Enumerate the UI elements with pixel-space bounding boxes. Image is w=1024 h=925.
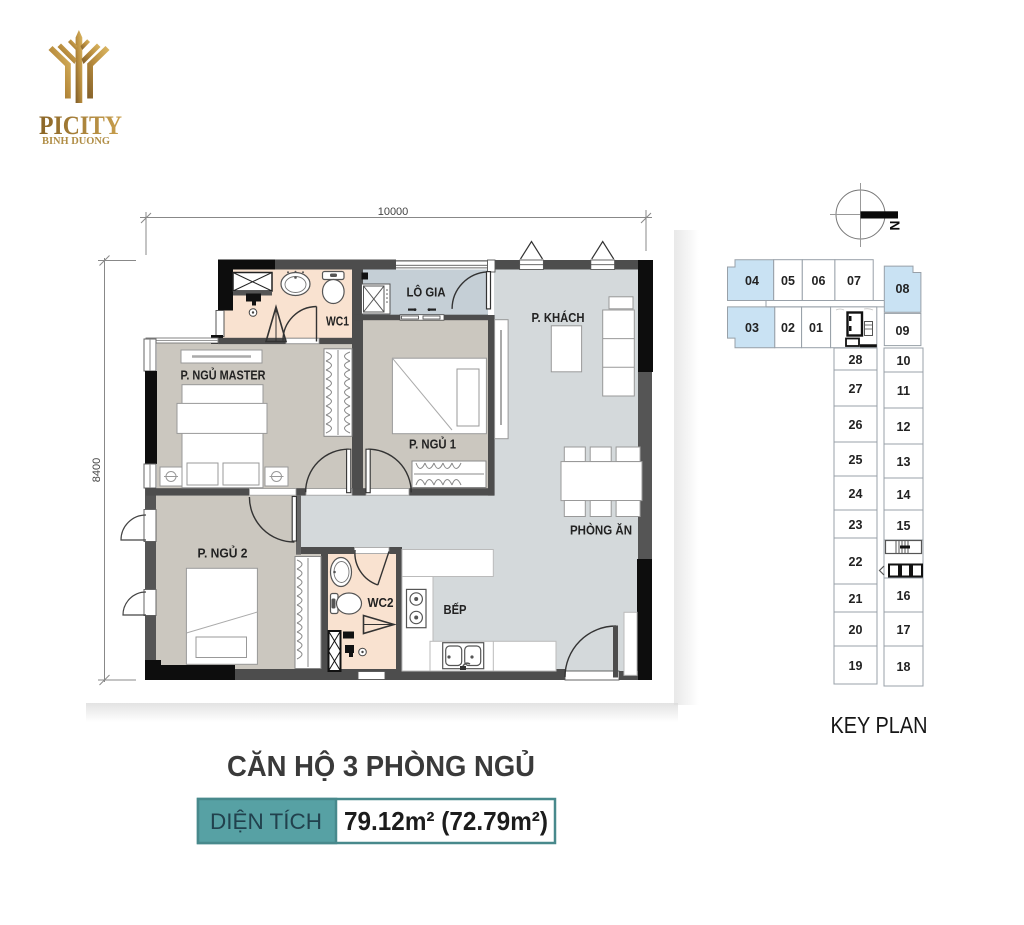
svg-text:06: 06	[812, 274, 826, 288]
svg-text:P. NGỦ MASTER: P. NGỦ MASTER	[181, 368, 267, 383]
svg-text:BẾP: BẾP	[444, 602, 467, 617]
svg-text:CĂN HỘ 3 PHÒNG NGỦ: CĂN HỘ 3 PHÒNG NGỦ	[227, 749, 535, 783]
svg-text:PHÒNG ĂN: PHÒNG ĂN	[570, 523, 632, 538]
svg-text:04: 04	[745, 274, 759, 288]
svg-text:01: 01	[809, 321, 823, 335]
svg-text:P. KHÁCH: P. KHÁCH	[532, 310, 585, 325]
svg-text:P. NGỦ 2: P. NGỦ 2	[198, 546, 248, 561]
svg-text:13: 13	[897, 455, 911, 469]
svg-text:03: 03	[745, 321, 759, 335]
svg-text:27: 27	[849, 382, 863, 396]
svg-text:LÔ GIA: LÔ GIA	[407, 284, 447, 299]
svg-text:79.12m² (72.79m²): 79.12m² (72.79m²)	[344, 806, 548, 836]
svg-text:16: 16	[897, 589, 911, 603]
svg-text:KEY PLAN: KEY PLAN	[831, 712, 928, 738]
svg-text:DIỆN TÍCH: DIỆN TÍCH	[210, 809, 322, 834]
svg-text:20: 20	[849, 623, 863, 637]
svg-text:WC2: WC2	[368, 595, 394, 610]
svg-text:BINH DUONG: BINH DUONG	[42, 136, 110, 147]
svg-text:21: 21	[849, 592, 863, 606]
svg-text:09: 09	[896, 324, 910, 338]
svg-text:19: 19	[849, 659, 863, 673]
svg-text:10: 10	[897, 354, 911, 368]
svg-text:11: 11	[897, 384, 910, 398]
svg-text:12: 12	[897, 420, 911, 434]
svg-text:8400: 8400	[91, 458, 103, 482]
svg-text:14: 14	[897, 488, 911, 502]
svg-text:26: 26	[849, 418, 863, 432]
svg-text:28: 28	[849, 353, 863, 367]
svg-text:05: 05	[781, 274, 795, 288]
svg-text:02: 02	[781, 321, 795, 335]
svg-text:22: 22	[849, 555, 863, 569]
svg-text:24: 24	[849, 487, 863, 501]
svg-text:N: N	[887, 220, 903, 230]
svg-text:17: 17	[897, 623, 911, 637]
svg-text:WC1: WC1	[326, 314, 349, 329]
svg-text:23: 23	[849, 518, 863, 532]
svg-text:18: 18	[897, 660, 911, 674]
svg-text:10000: 10000	[378, 206, 409, 218]
svg-text:07: 07	[847, 274, 861, 288]
svg-text:15: 15	[897, 519, 911, 533]
svg-text:25: 25	[849, 453, 863, 467]
svg-text:08: 08	[896, 282, 910, 296]
svg-text:P. NGỦ 1: P. NGỦ 1	[409, 437, 456, 452]
